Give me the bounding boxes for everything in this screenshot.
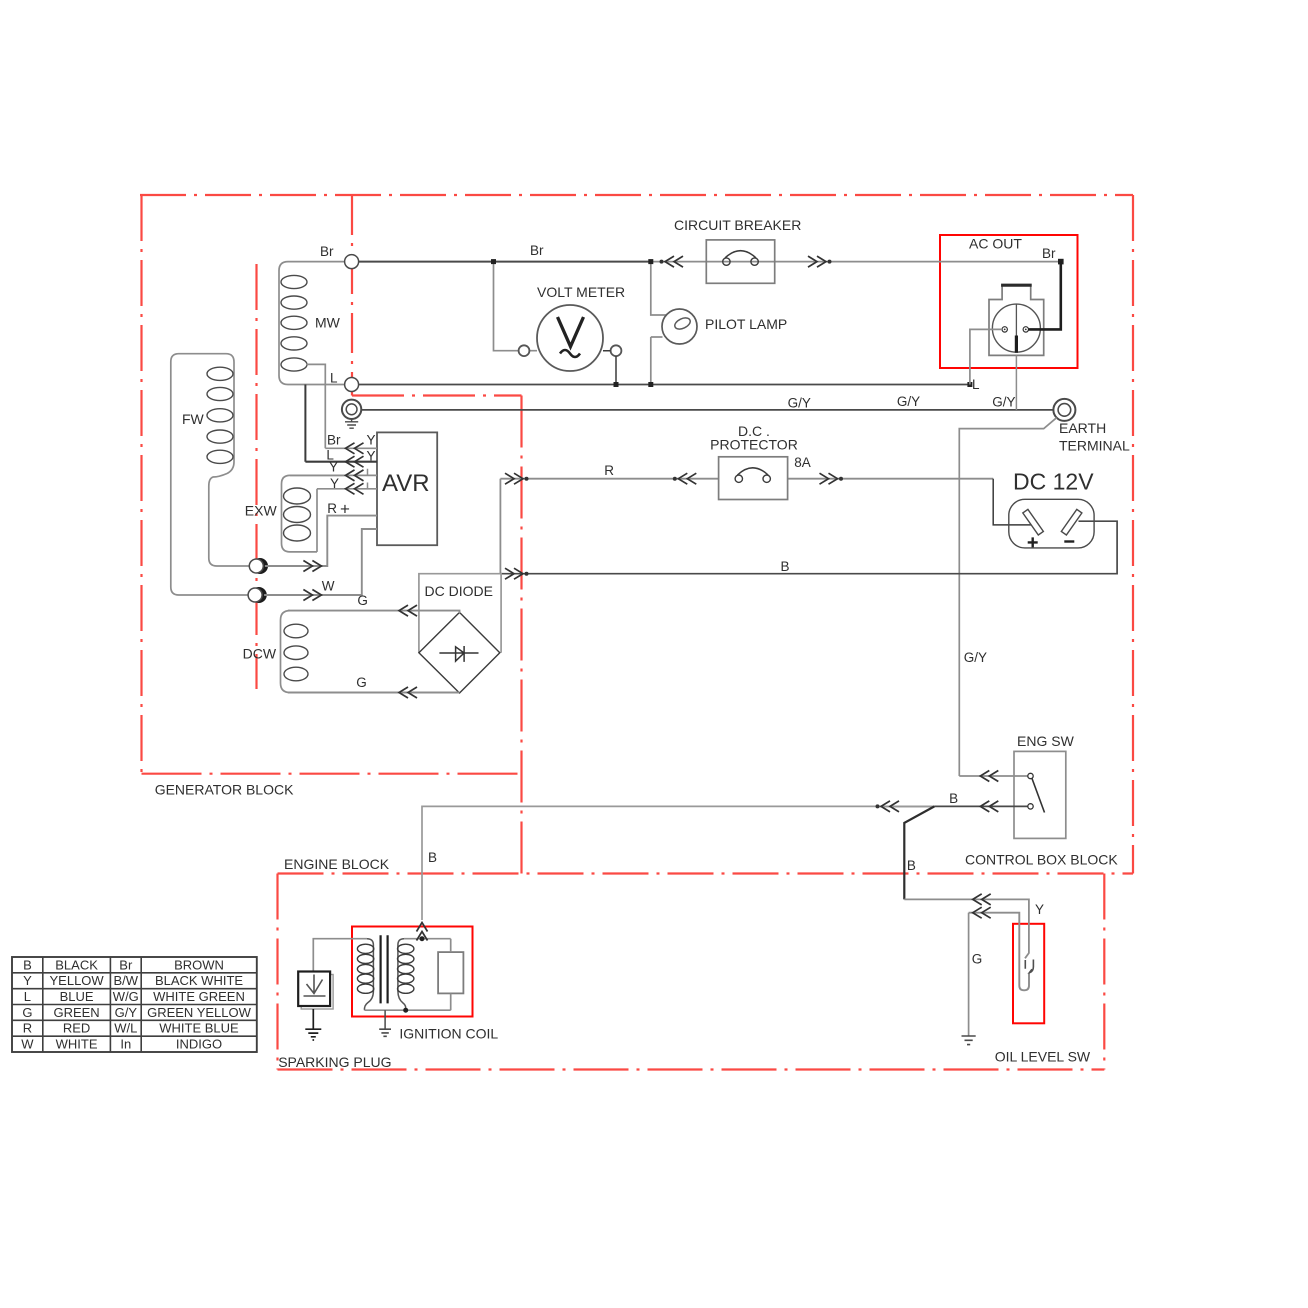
svg-text:DCW: DCW [243,646,277,662]
svg-text:DC 12V: DC 12V [1013,469,1094,495]
svg-text:VOLT METER: VOLT METER [537,284,625,300]
svg-text:Y: Y [367,433,376,448]
svg-text:B/W: B/W [114,973,139,988]
svg-text:WHITE BLUE: WHITE BLUE [159,1021,239,1036]
svg-text:INDIGO: INDIGO [176,1036,222,1051]
svg-text:G: G [22,1005,32,1020]
svg-text:Y: Y [23,973,32,988]
svg-text:EXW: EXW [245,503,278,519]
svg-text:+: + [340,500,350,519]
svg-text:BROWN: BROWN [174,957,224,972]
svg-text:Y: Y [330,476,339,491]
svg-text:G: G [357,593,368,608]
svg-text:BLACK WHITE: BLACK WHITE [155,973,243,988]
svg-text:G/Y: G/Y [992,395,1015,410]
svg-text:SPARKING PLUG: SPARKING PLUG [278,1054,391,1070]
svg-text:L: L [972,377,980,392]
svg-text:PILOT LAMP: PILOT LAMP [705,316,787,332]
svg-text:G: G [972,952,983,967]
svg-text:TERMINAL: TERMINAL [1059,438,1130,454]
svg-text:YELLOW: YELLOW [50,973,105,988]
svg-text:W: W [21,1036,34,1051]
svg-text:GREEN YELLOW: GREEN YELLOW [147,1005,252,1020]
svg-text:Br: Br [320,244,334,259]
svg-text:R: R [327,501,337,516]
svg-text:BLUE: BLUE [60,989,94,1004]
svg-text:B: B [781,559,790,574]
svg-text:BLACK: BLACK [55,957,98,972]
svg-text:B: B [949,791,958,806]
svg-text:CIRCUIT BREAKER: CIRCUIT BREAKER [674,217,801,233]
svg-text:ENGINE BLOCK: ENGINE BLOCK [284,856,390,872]
svg-text:B: B [907,858,916,873]
svg-text:ENG SW: ENG SW [1017,733,1075,749]
svg-text:CONTROL BOX BLOCK: CONTROL BOX BLOCK [965,852,1118,868]
svg-text:AC OUT: AC OUT [969,236,1022,252]
svg-text:G/Y: G/Y [964,650,987,665]
svg-text:G/Y: G/Y [897,394,920,409]
svg-text:R: R [23,1021,32,1036]
svg-text:Br: Br [327,432,341,447]
svg-text:B: B [428,850,437,865]
svg-text:8A: 8A [794,455,811,470]
svg-text:IGNITION COIL: IGNITION COIL [399,1026,498,1042]
svg-text:W/G: W/G [113,989,139,1004]
svg-text:L: L [24,989,31,1004]
svg-text:GREEN: GREEN [53,1005,99,1020]
svg-text:In: In [120,1036,131,1051]
svg-text:G/Y: G/Y [788,396,811,411]
svg-text:R: R [604,463,614,478]
svg-text:WHITE: WHITE [56,1036,98,1051]
svg-text:Y: Y [367,449,376,464]
svg-text:FW: FW [182,411,205,427]
svg-text:RED: RED [63,1021,90,1036]
svg-text:G: G [356,675,367,690]
svg-text:B: B [23,957,32,972]
svg-text:OIL LEVEL SW: OIL LEVEL SW [995,1049,1091,1065]
svg-text:W/L: W/L [114,1021,137,1036]
svg-text:AVR: AVR [382,470,430,497]
svg-text:PROTECTOR: PROTECTOR [710,437,798,453]
svg-text:MW: MW [315,315,341,331]
svg-text:Y: Y [329,460,338,475]
svg-text:WHITE GREEN: WHITE GREEN [153,989,245,1004]
svg-text:Y: Y [1035,902,1044,917]
svg-text:GENERATOR BLOCK: GENERATOR BLOCK [155,782,294,798]
svg-text:EARTH: EARTH [1059,420,1106,436]
svg-text:DC DIODE: DC DIODE [425,583,493,599]
svg-text:L: L [330,371,338,386]
svg-text:W: W [322,579,335,594]
svg-text:Br: Br [530,243,544,258]
svg-text:Br: Br [119,957,133,972]
svg-text:G/Y: G/Y [115,1005,138,1020]
svg-text:Br: Br [1042,246,1056,261]
